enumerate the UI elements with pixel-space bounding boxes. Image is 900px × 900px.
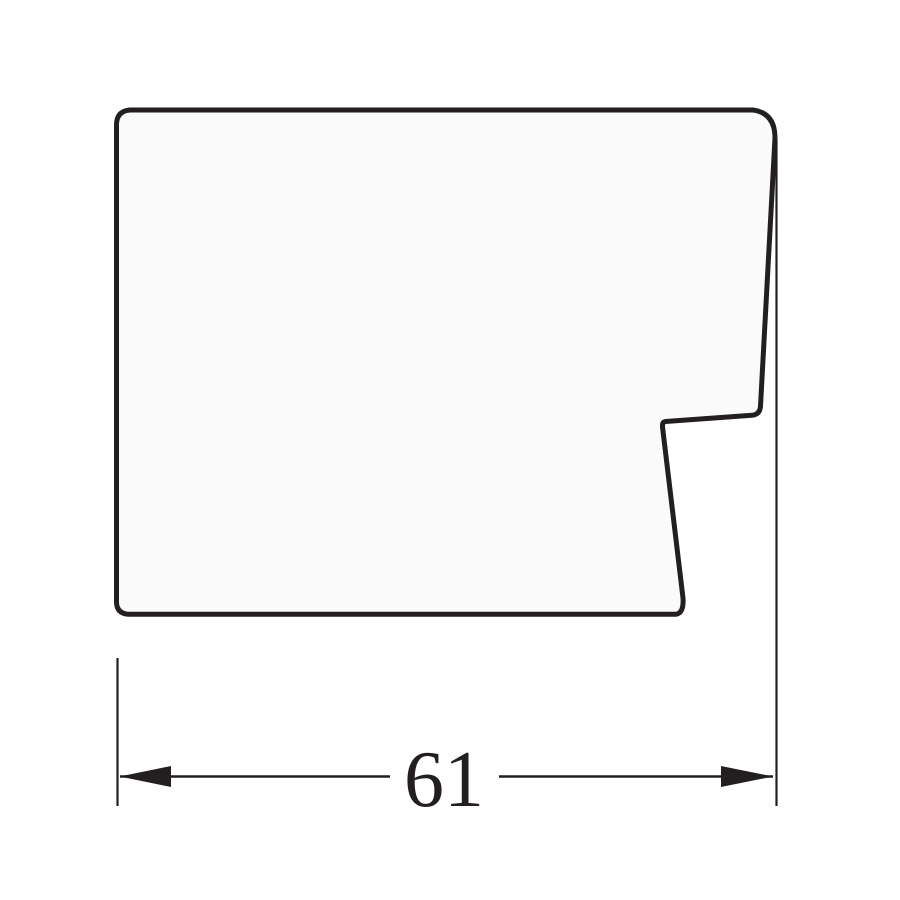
svg-text:61: 61 [404, 736, 484, 824]
